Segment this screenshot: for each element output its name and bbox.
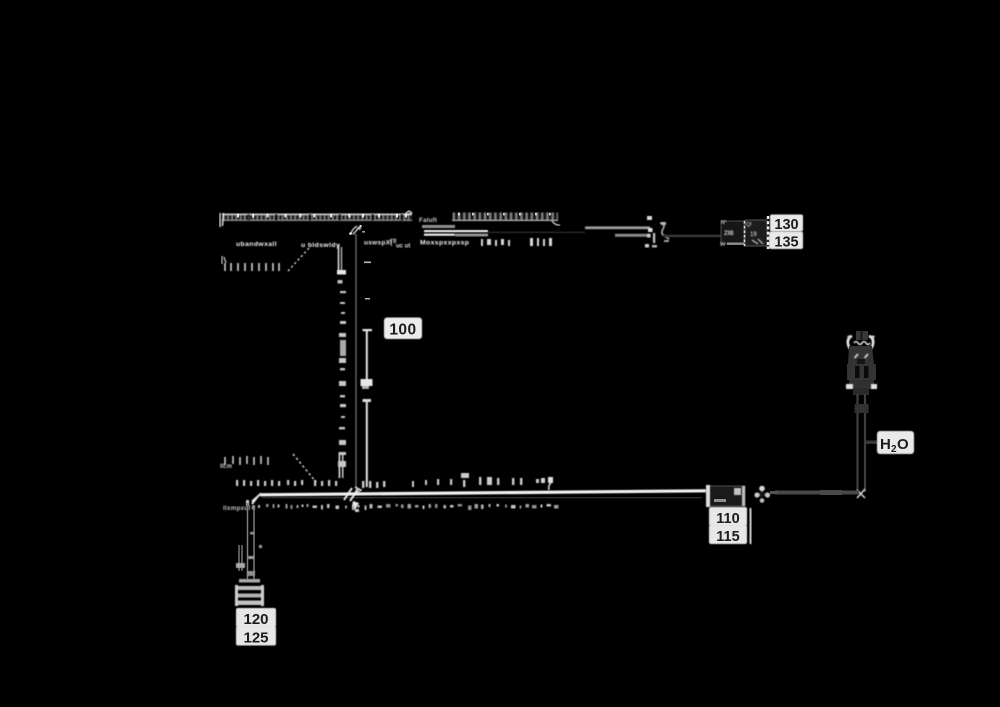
svg-text:W: W	[720, 242, 726, 248]
svg-text:lll.m: lll.m	[220, 464, 232, 470]
svg-text:Q!: Q!	[746, 222, 752, 228]
svg-text:19: 19	[750, 232, 757, 238]
svg-text:ubandwxall: ubandwxall	[236, 241, 277, 248]
svg-text:115: 115	[716, 529, 739, 545]
svg-text:110: 110	[716, 511, 739, 527]
svg-text:N°: N°	[721, 220, 727, 226]
svg-text:uc ut: uc ut	[396, 244, 410, 250]
svg-text:u bldswldy: u bldswldy	[301, 242, 340, 249]
svg-text:H: H	[880, 436, 891, 453]
svg-text:130: 130	[774, 217, 798, 233]
svg-text:120: 120	[243, 611, 268, 628]
svg-text:125: 125	[243, 630, 268, 647]
svg-text:100: 100	[389, 322, 416, 339]
svg-text:Falufi: Falufi	[419, 217, 437, 224]
svg-text:135: 135	[774, 235, 798, 251]
svg-text:O: O	[897, 436, 909, 453]
svg-text:uswspX|: uswspX|	[364, 240, 392, 247]
svg-text:Moxspxxpxsp: Moxspxxpxsp	[420, 240, 469, 247]
svg-text:ZIB: ZIB	[724, 231, 734, 237]
svg-text:llxmpxul: llxmpxul	[223, 505, 251, 512]
